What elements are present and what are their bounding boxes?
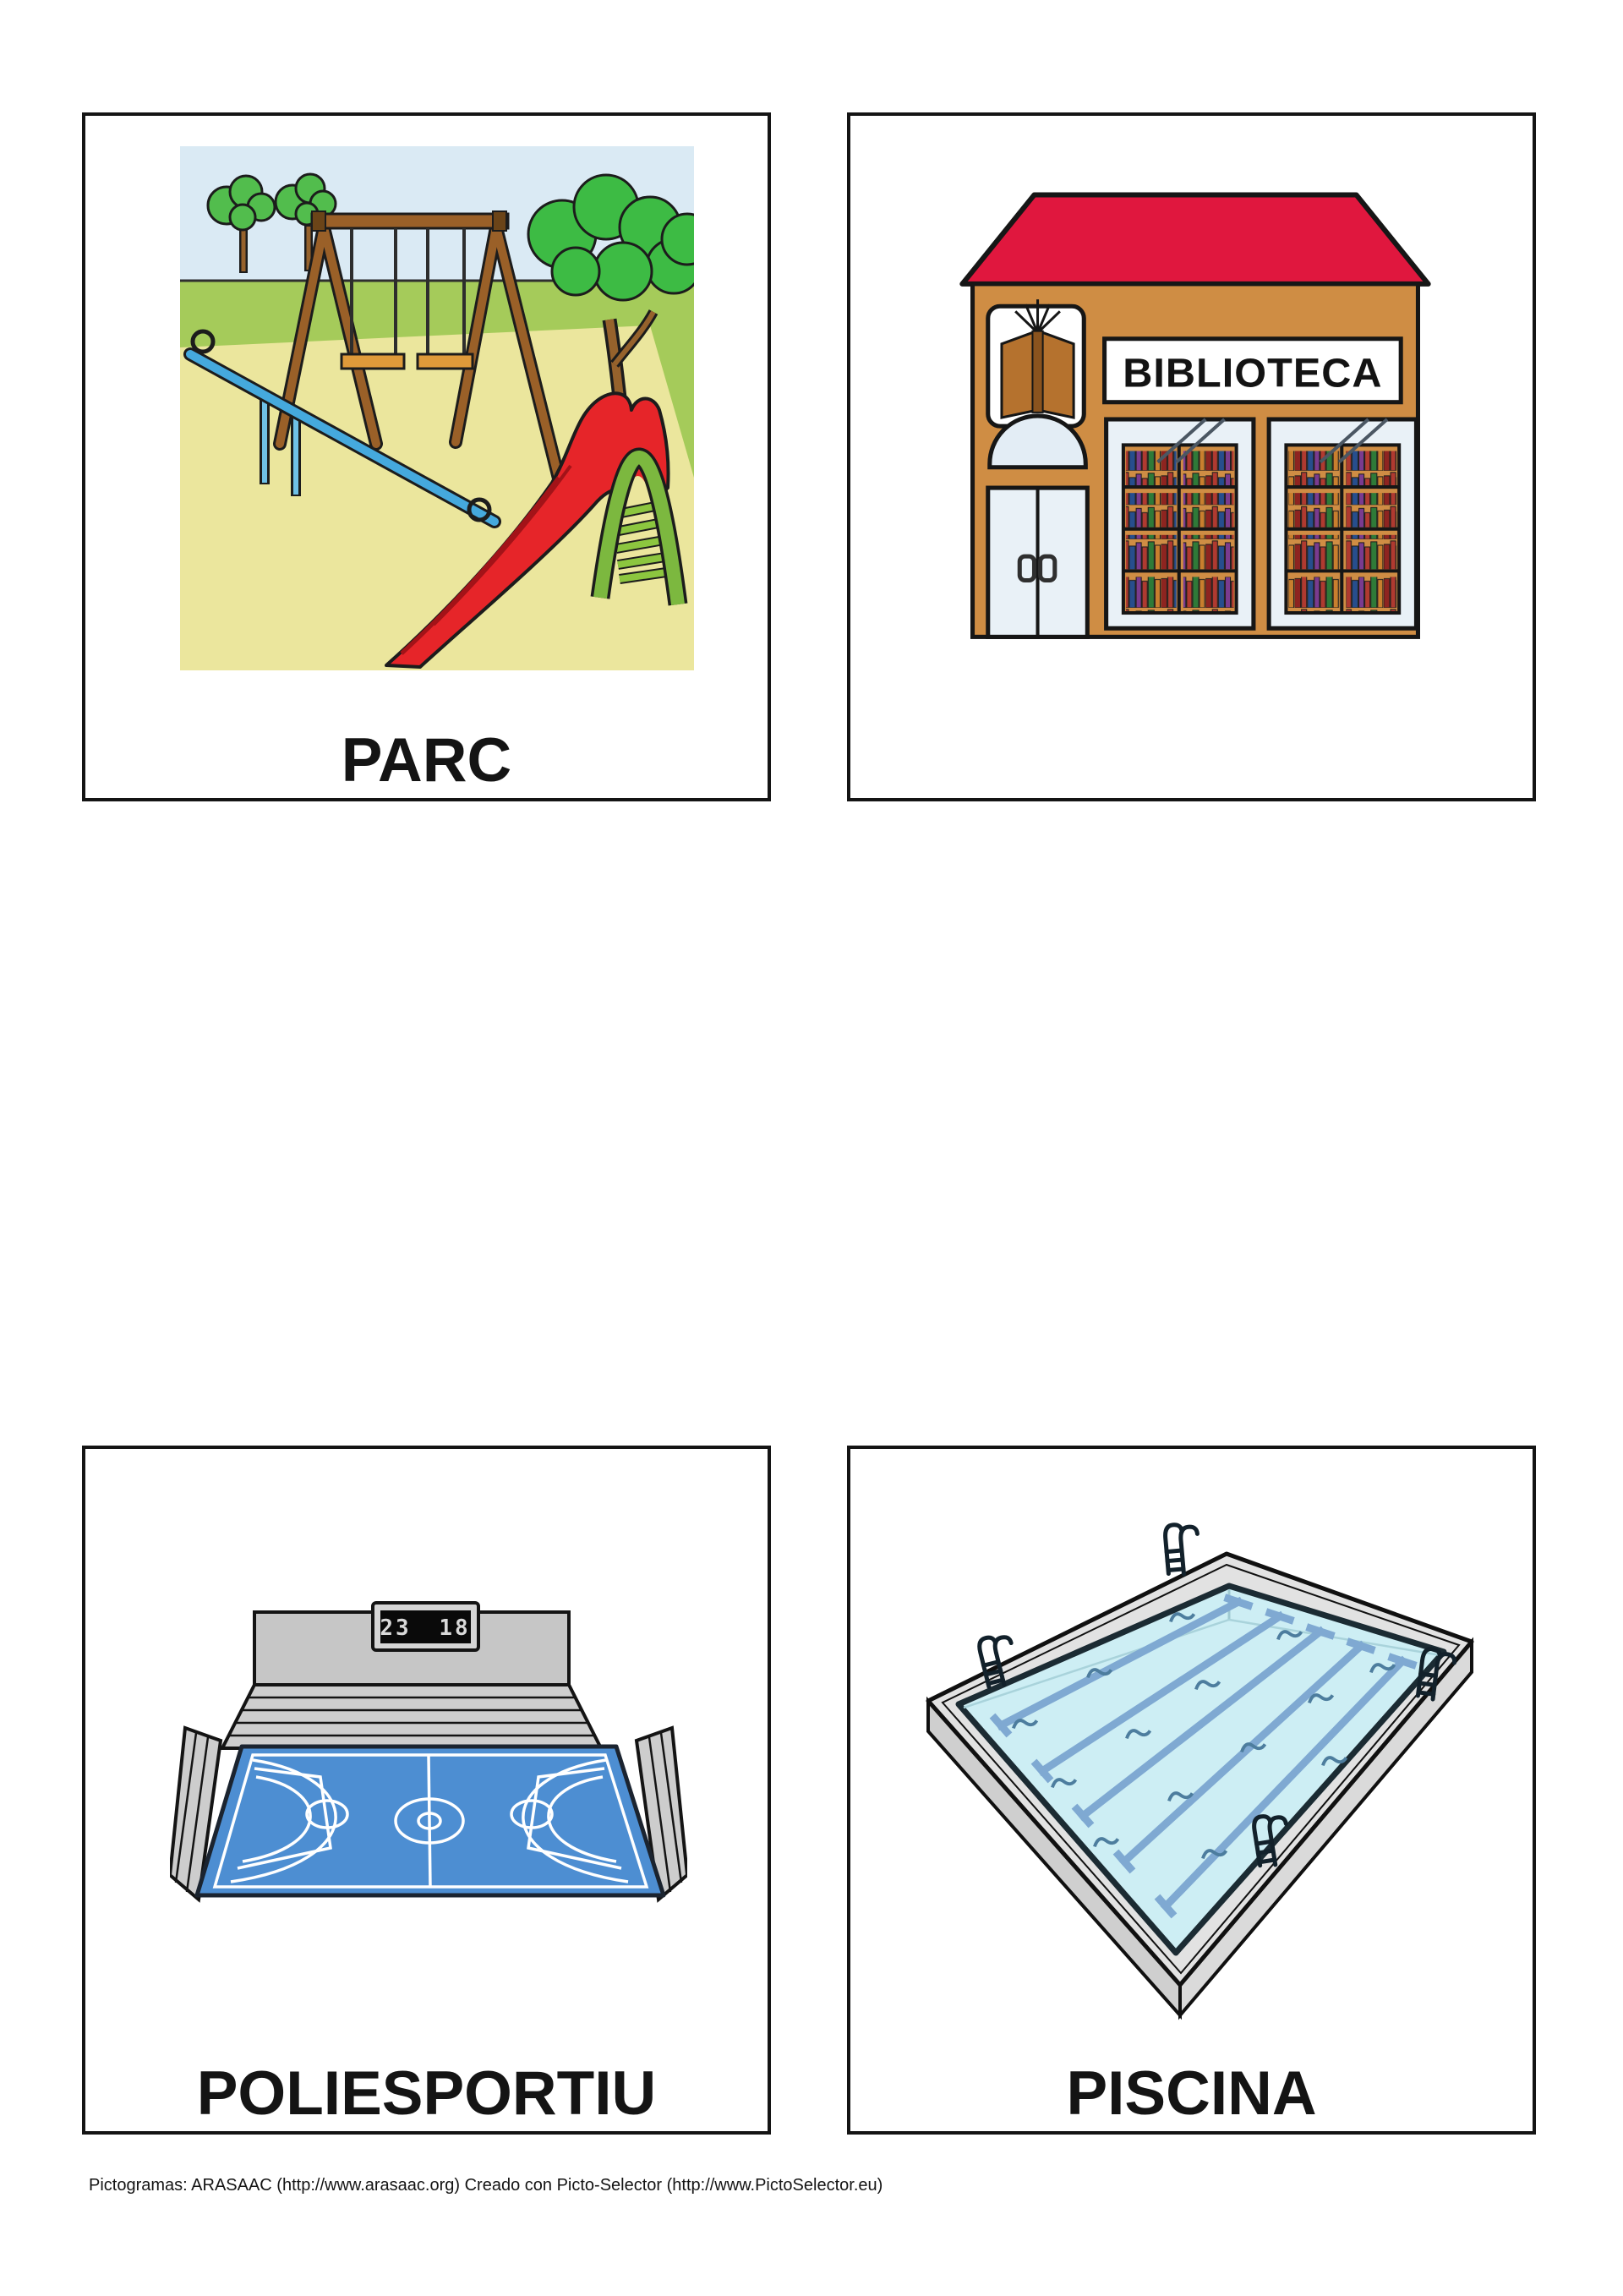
book-logo-icon	[988, 299, 1084, 426]
swimming-pool-pictogram	[918, 1479, 1476, 2020]
flashcard-sheet: PARC	[0, 0, 1623, 2296]
card-biblioteca: BIBLIOTECA	[847, 112, 1536, 801]
library-sign: BIBLIOTECA	[1105, 339, 1402, 402]
swing-seat	[342, 354, 404, 369]
basketball-court	[197, 1747, 664, 1895]
library-pictogram: BIBLIOTECA	[938, 162, 1452, 676]
sports-hall-pictogram: 23 18	[170, 1479, 687, 1987]
playground-pictogram	[180, 146, 694, 670]
card-label: POLIESPORTIU	[85, 2063, 768, 2124]
display-window-right	[1269, 419, 1416, 628]
card-label: PARC	[85, 730, 768, 791]
library-sign-text: BIBLIOTECA	[1123, 350, 1382, 396]
card-parc: PARC	[82, 112, 771, 801]
card-poliesportiu: 23 18	[82, 1446, 771, 2135]
display-window-left	[1107, 419, 1254, 628]
scoreboard-digits: 23 18	[380, 1615, 470, 1641]
swing-seat	[418, 354, 473, 369]
entrance-door	[988, 416, 1088, 637]
card-piscina: PISCINA	[847, 1446, 1536, 2135]
credit-line: Pictogramas: ARASAAC (http://www.arasaac…	[89, 2176, 883, 2195]
building-roof	[962, 195, 1428, 284]
scoreboard: 23 18	[373, 1603, 478, 1650]
card-label: PISCINA	[850, 2063, 1533, 2124]
